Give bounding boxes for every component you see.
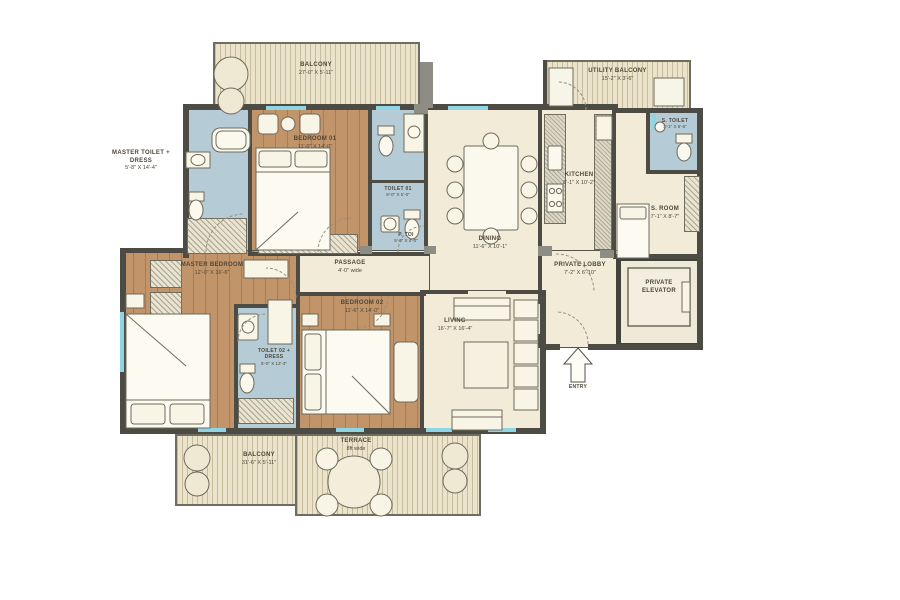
- wall: [613, 254, 703, 259]
- wall: [506, 290, 542, 294]
- wall-jamb: [420, 62, 433, 108]
- window: [652, 114, 656, 130]
- wall: [370, 180, 424, 183]
- room-balcony-bottom: [175, 434, 297, 506]
- window: [120, 312, 124, 372]
- kitchen-counter: [544, 114, 566, 224]
- room-terrace: [295, 434, 481, 516]
- shower: [238, 398, 294, 424]
- wardrobe: [258, 234, 358, 254]
- dress-closet: [187, 218, 247, 254]
- wardrobe: [150, 260, 182, 288]
- wall: [424, 290, 468, 294]
- wall: [120, 248, 188, 253]
- window: [198, 428, 226, 432]
- label-entry: ENTRY: [562, 384, 594, 390]
- wall: [424, 104, 428, 256]
- wall-jamb: [424, 246, 436, 254]
- wall: [613, 108, 703, 113]
- wardrobe: [684, 176, 700, 232]
- room-utility-balcony: [545, 60, 691, 110]
- wall: [248, 104, 252, 256]
- wall: [420, 290, 424, 434]
- room-passage: [298, 250, 430, 296]
- wall: [296, 292, 426, 296]
- window: [426, 428, 452, 432]
- wall-jamb: [600, 250, 614, 258]
- entry-arrow: [564, 348, 592, 382]
- room-s-toilet: [648, 112, 702, 174]
- window: [448, 106, 488, 110]
- label-master-toilet: MASTER TOILET + DRESS 5'-8" X 14'-4": [100, 150, 182, 172]
- floor-plan: BALCONY 27'-0" X 5'-11" UTILITY BALCONY …: [0, 0, 900, 600]
- kitchen-counter: [594, 114, 612, 250]
- wall: [540, 290, 546, 434]
- wall: [120, 428, 546, 434]
- room-private-lobby: [540, 250, 620, 348]
- window: [488, 428, 516, 432]
- room-private-elevator: [616, 256, 702, 348]
- room-living: [422, 290, 544, 434]
- room-bedroom-02: [296, 292, 424, 434]
- window: [266, 106, 306, 110]
- wall: [612, 108, 616, 258]
- wall: [646, 170, 702, 174]
- wall: [538, 108, 542, 304]
- wall-jamb: [360, 246, 372, 254]
- room-balcony-top: [213, 42, 420, 110]
- window: [336, 428, 364, 432]
- wardrobe: [150, 292, 182, 320]
- room-dining: [426, 108, 542, 294]
- wall: [646, 110, 650, 174]
- wall: [543, 60, 547, 108]
- wall-jamb: [414, 104, 428, 114]
- wall-jamb: [538, 246, 552, 256]
- wall: [588, 344, 703, 350]
- window: [376, 106, 400, 110]
- wall: [296, 252, 300, 434]
- wall: [234, 304, 298, 308]
